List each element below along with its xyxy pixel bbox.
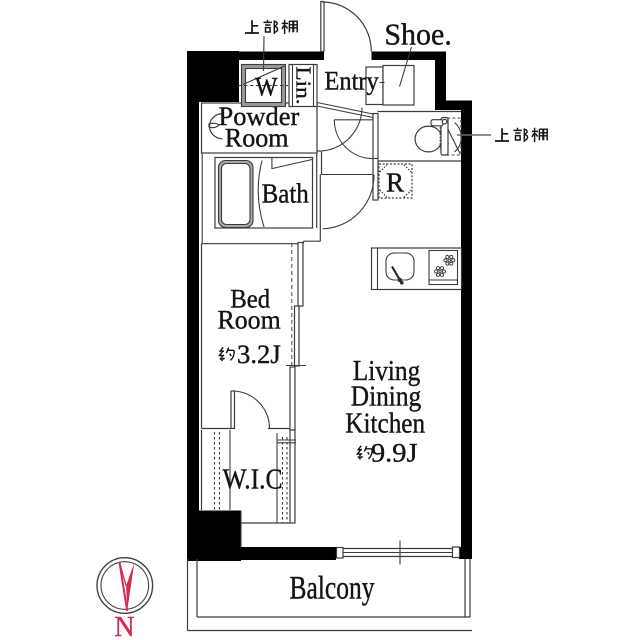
- svg-text:Shoe.: Shoe.: [384, 16, 452, 51]
- svg-text:W: W: [255, 73, 278, 102]
- svg-text:Entry: Entry: [324, 67, 378, 96]
- svg-text:N: N: [114, 612, 134, 640]
- svg-text:Room: Room: [225, 124, 289, 153]
- svg-text:R: R: [386, 168, 404, 198]
- svg-text:Lin.: Lin.: [292, 67, 316, 105]
- svg-text:Balcony: Balcony: [290, 571, 375, 607]
- svg-text:Bath: Bath: [262, 178, 310, 208]
- svg-text:Room: Room: [218, 305, 281, 334]
- svg-text:W.I.C: W.I.C: [222, 465, 282, 496]
- svg-text:Kitchen: Kitchen: [345, 409, 425, 440]
- svg-text:9.9J: 9.9J: [371, 439, 418, 468]
- svg-text:3.2J: 3.2J: [237, 340, 281, 369]
